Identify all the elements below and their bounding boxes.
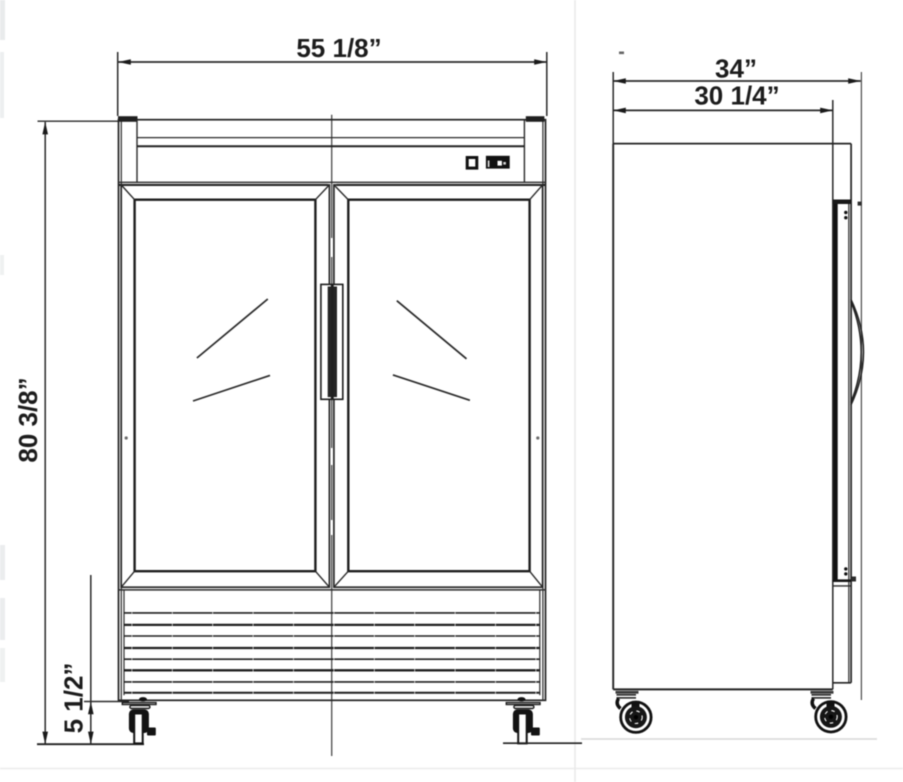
svg-text:30 1/4”: 30 1/4” (694, 81, 779, 111)
svg-text:55 1/8”: 55 1/8” (296, 33, 381, 63)
svg-text:5 1/2”: 5 1/2” (59, 663, 89, 734)
svg-text:80 3/8”: 80 3/8” (13, 377, 43, 462)
svg-text:34”: 34” (715, 54, 757, 84)
